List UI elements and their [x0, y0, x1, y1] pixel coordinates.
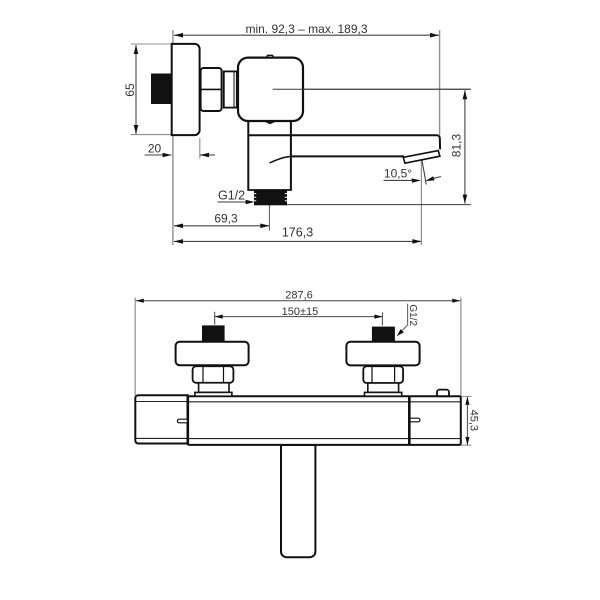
svg-text:287,6: 287,6 [285, 290, 313, 302]
svg-text:65: 65 [123, 83, 137, 97]
svg-text:69,3: 69,3 [214, 211, 238, 225]
svg-text:G1/2: G1/2 [407, 304, 418, 326]
svg-text:81,3: 81,3 [450, 133, 464, 157]
svg-text:150±15: 150±15 [282, 306, 319, 318]
svg-text:min. 92,3 – max. 189,3: min. 92,3 – max. 189,3 [245, 22, 367, 36]
svg-text:176,3: 176,3 [282, 226, 313, 240]
svg-text:20: 20 [148, 142, 162, 156]
svg-text:G1/2: G1/2 [218, 189, 245, 203]
svg-text:45,3: 45,3 [468, 410, 480, 431]
svg-text:10,5°: 10,5° [384, 167, 412, 181]
